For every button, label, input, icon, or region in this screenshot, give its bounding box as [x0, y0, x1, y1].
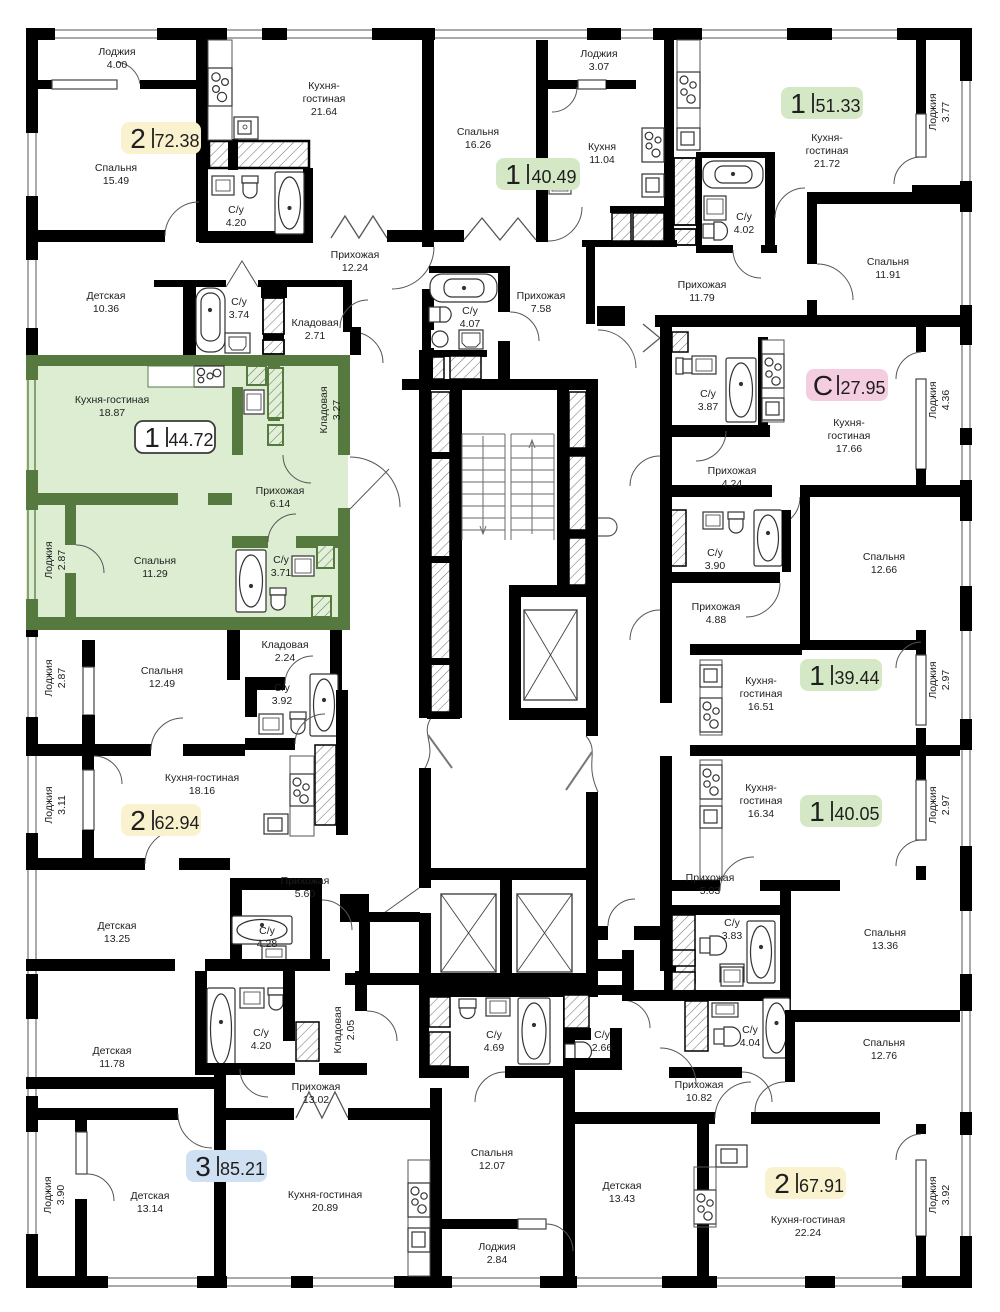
- svg-text:4.88: 4.88: [706, 614, 727, 626]
- svg-text:12.49: 12.49: [149, 678, 175, 690]
- svg-text:С/у: С/у: [700, 388, 717, 400]
- svg-text:12.07: 12.07: [479, 1160, 505, 1172]
- svg-text:85.21: 85.21: [220, 1159, 265, 1179]
- svg-text:С/у: С/у: [742, 1024, 759, 1036]
- svg-text:Лоджия: Лоджия: [43, 541, 55, 578]
- svg-text:гостиная: гостиная: [828, 430, 871, 442]
- svg-text:16.26: 16.26: [465, 139, 491, 151]
- svg-text:Спальня: Спальня: [863, 1037, 905, 1049]
- svg-text:Лоджия: Лоджия: [927, 1176, 939, 1213]
- svg-text:11.79: 11.79: [689, 292, 715, 304]
- svg-text:18.16: 18.16: [189, 785, 215, 797]
- svg-text:4.69: 4.69: [484, 1042, 505, 1054]
- svg-text:3.77: 3.77: [940, 102, 952, 123]
- svg-text:3.92: 3.92: [940, 1185, 952, 1206]
- svg-text:Спальня: Спальня: [134, 555, 176, 567]
- svg-text:Прихожая: Прихожая: [708, 465, 757, 477]
- svg-text:Детская: Детская: [93, 1045, 132, 1057]
- svg-text:11.78: 11.78: [99, 1058, 125, 1070]
- svg-text:2.87: 2.87: [56, 668, 68, 689]
- svg-text:3.90: 3.90: [705, 560, 726, 572]
- svg-text:3.27: 3.27: [331, 400, 343, 421]
- svg-text:Прихожая: Прихожая: [292, 1081, 341, 1093]
- svg-text:3.92: 3.92: [272, 695, 293, 707]
- svg-text:Спальня: Спальня: [457, 126, 499, 138]
- svg-text:Лоджия: Лоджия: [927, 661, 939, 698]
- svg-text:Лоджия: Лоджия: [580, 48, 617, 60]
- svg-text:Прихожая: Прихожая: [517, 290, 566, 302]
- svg-text:2.97: 2.97: [940, 670, 952, 691]
- svg-text:44.72: 44.72: [168, 430, 213, 450]
- svg-text:Лоджия: Лоджия: [43, 659, 55, 696]
- svg-text:4.28: 4.28: [257, 938, 278, 950]
- svg-text:6.14: 6.14: [270, 498, 291, 510]
- svg-text:Прихожая: Прихожая: [692, 601, 741, 613]
- svg-text:40.05: 40.05: [834, 804, 879, 824]
- svg-text:12.24: 12.24: [342, 262, 368, 274]
- svg-text:15.49: 15.49: [103, 175, 129, 187]
- svg-text:Кухня-гостиная: Кухня-гостиная: [165, 772, 239, 784]
- svg-text:С/у: С/у: [594, 1029, 611, 1041]
- svg-text:Прихожая: Прихожая: [281, 875, 330, 887]
- svg-text:С/у: С/у: [486, 1029, 503, 1041]
- svg-text:4.24: 4.24: [722, 478, 743, 490]
- svg-text:С/у: С/у: [707, 547, 724, 559]
- svg-text:62.94: 62.94: [154, 813, 199, 833]
- svg-text:Прихожая: Прихожая: [331, 249, 380, 261]
- svg-text:67.91: 67.91: [799, 1176, 844, 1196]
- svg-text:Лоджия: Лоджия: [927, 786, 939, 823]
- svg-text:Лоджия: Лоджия: [478, 1241, 515, 1253]
- svg-text:2: 2: [130, 123, 146, 154]
- svg-text:Кухня-: Кухня-: [833, 417, 865, 429]
- svg-text:3.71: 3.71: [271, 567, 292, 579]
- svg-text:Кухня-: Кухня-: [745, 675, 777, 687]
- svg-text:4.02: 4.02: [734, 224, 755, 236]
- svg-text:Кухня-: Кухня-: [745, 782, 777, 794]
- svg-text:С/у: С/у: [274, 682, 291, 694]
- svg-text:гостиная: гостиная: [303, 93, 346, 105]
- svg-text:21.64: 21.64: [311, 106, 337, 118]
- svg-text:гостиная: гостиная: [740, 795, 783, 807]
- svg-text:Кухня-: Кухня-: [811, 132, 843, 144]
- svg-text:2.87: 2.87: [56, 550, 68, 571]
- svg-text:Спальня: Спальня: [867, 256, 909, 268]
- svg-text:21.72: 21.72: [814, 158, 840, 170]
- svg-text:Лоджия: Лоджия: [43, 786, 55, 823]
- svg-text:Лоджия: Лоджия: [927, 93, 939, 130]
- svg-text:2.84: 2.84: [487, 1254, 508, 1266]
- svg-text:Кухня: Кухня: [588, 141, 616, 153]
- svg-text:Детская: Детская: [98, 920, 137, 932]
- svg-text:12.66: 12.66: [871, 564, 897, 576]
- svg-text:17.66: 17.66: [836, 443, 862, 455]
- svg-text:Прихожая: Прихожая: [678, 279, 727, 291]
- svg-text:Спальня: Спальня: [864, 927, 906, 939]
- svg-text:2: 2: [774, 1168, 790, 1199]
- svg-text:Кладовая: Кладовая: [332, 1006, 344, 1053]
- svg-text:Кухня-гостиная: Кухня-гостиная: [771, 1214, 845, 1226]
- svg-text:4.36: 4.36: [940, 390, 952, 411]
- svg-text:11.04: 11.04: [589, 154, 615, 166]
- svg-text:С/у: С/у: [736, 211, 753, 223]
- svg-text:5.60: 5.60: [295, 888, 316, 900]
- svg-text:2.05: 2.05: [345, 1020, 357, 1041]
- svg-text:4.07: 4.07: [460, 318, 481, 330]
- svg-text:13.02: 13.02: [303, 1094, 329, 1106]
- svg-text:10.36: 10.36: [93, 303, 119, 315]
- svg-text:13.43: 13.43: [609, 1193, 635, 1205]
- svg-text:Спальня: Спальня: [141, 665, 183, 677]
- svg-text:3.87: 3.87: [698, 401, 719, 413]
- svg-text:16.51: 16.51: [748, 701, 774, 713]
- svg-text:2.24: 2.24: [275, 652, 296, 664]
- svg-text:11.29: 11.29: [142, 568, 168, 580]
- svg-text:3.83: 3.83: [722, 930, 743, 942]
- svg-text:4.04: 4.04: [740, 1037, 761, 1049]
- svg-text:Кухня-: Кухня-: [308, 80, 340, 92]
- svg-text:Прихожая: Прихожая: [675, 1079, 724, 1091]
- svg-text:2.71: 2.71: [305, 330, 326, 342]
- svg-text:13.36: 13.36: [872, 940, 898, 952]
- svg-text:С/у: С/у: [231, 296, 248, 308]
- svg-text:5.03: 5.03: [700, 885, 721, 897]
- svg-text:3.11: 3.11: [56, 795, 68, 815]
- svg-text:20.89: 20.89: [312, 1202, 338, 1214]
- svg-text:2: 2: [130, 805, 146, 836]
- svg-text:С/у: С/у: [253, 1027, 270, 1039]
- svg-text:11.91: 11.91: [875, 269, 901, 281]
- svg-text:гостиная: гостиная: [740, 688, 783, 700]
- svg-text:С/у: С/у: [228, 204, 245, 216]
- svg-text:Кладовая: Кладовая: [261, 639, 308, 651]
- svg-text:51.33: 51.33: [815, 96, 860, 116]
- svg-text:гостиная: гостиная: [806, 145, 849, 157]
- svg-text:3.90: 3.90: [55, 1185, 67, 1206]
- svg-text:7.58: 7.58: [531, 303, 552, 315]
- svg-text:С/у: С/у: [259, 925, 276, 937]
- svg-text:39.44: 39.44: [834, 668, 879, 688]
- svg-text:3: 3: [195, 1151, 211, 1182]
- svg-text:1: 1: [809, 796, 825, 827]
- svg-text:Лоджия: Лоджия: [98, 46, 135, 58]
- svg-text:3.07: 3.07: [589, 61, 610, 73]
- svg-text:16.34: 16.34: [748, 808, 774, 820]
- svg-text:Кухня-гостиная: Кухня-гостиная: [288, 1189, 362, 1201]
- svg-text:27.95: 27.95: [840, 378, 885, 398]
- svg-text:С/у: С/у: [462, 305, 479, 317]
- svg-text:10.82: 10.82: [686, 1092, 712, 1104]
- svg-text:3.74: 3.74: [229, 309, 250, 321]
- svg-text:4.20: 4.20: [226, 217, 247, 229]
- svg-text:2.97: 2.97: [940, 795, 952, 816]
- svg-text:2.66: 2.66: [592, 1042, 613, 1054]
- svg-text:С/у: С/у: [724, 917, 741, 929]
- svg-text:Лоджия: Лоджия: [42, 1176, 54, 1213]
- svg-text:Кухня-гостиная: Кухня-гостиная: [75, 394, 149, 406]
- svg-text:С: С: [813, 370, 833, 401]
- svg-text:1: 1: [144, 422, 160, 453]
- svg-text:12.76: 12.76: [871, 1050, 897, 1062]
- svg-text:Детская: Детская: [87, 290, 126, 302]
- svg-text:1: 1: [790, 88, 806, 119]
- svg-text:22.24: 22.24: [795, 1227, 821, 1239]
- svg-text:Детская: Детская: [131, 1190, 170, 1202]
- svg-text:18.87: 18.87: [99, 407, 125, 419]
- svg-text:40.49: 40.49: [531, 167, 576, 187]
- svg-text:13.14: 13.14: [137, 1203, 163, 1215]
- svg-text:4.20: 4.20: [251, 1040, 272, 1052]
- svg-text:Детская: Детская: [603, 1180, 642, 1192]
- svg-text:Прихожая: Прихожая: [256, 485, 305, 497]
- svg-text:Кладовая: Кладовая: [291, 317, 338, 329]
- svg-text:1: 1: [809, 660, 825, 691]
- svg-text:4.00: 4.00: [107, 59, 128, 71]
- svg-text:Спальня: Спальня: [471, 1147, 513, 1159]
- svg-text:Прихожая: Прихожая: [686, 872, 735, 884]
- svg-text:Спальня: Спальня: [95, 162, 137, 174]
- svg-text:1: 1: [505, 159, 521, 190]
- svg-text:С/у: С/у: [273, 554, 290, 566]
- svg-text:Кладовая: Кладовая: [318, 386, 330, 433]
- svg-text:Лоджия: Лоджия: [927, 381, 939, 418]
- svg-text:Спальня: Спальня: [863, 551, 905, 563]
- svg-text:72.38: 72.38: [154, 131, 199, 151]
- svg-text:13.25: 13.25: [104, 933, 130, 945]
